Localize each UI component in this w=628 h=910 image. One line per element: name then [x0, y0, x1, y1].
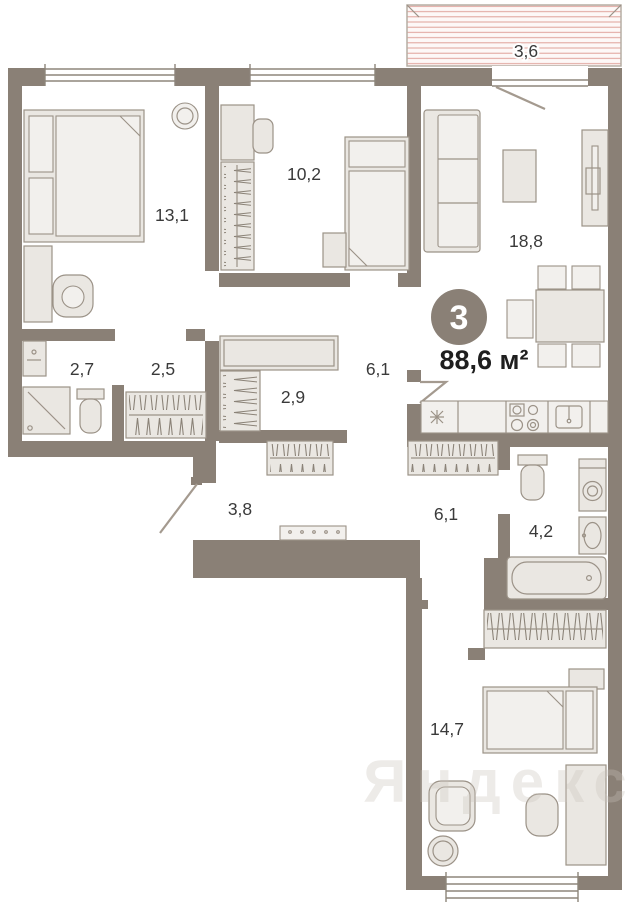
room-bath-27: 2,7: [23, 341, 104, 434]
wall-segment: [406, 578, 422, 890]
wardrobe-icon: [484, 610, 606, 648]
rooms-count: 3: [450, 299, 469, 337]
wall-segment: [420, 600, 428, 609]
nightstand-icon: [569, 669, 604, 689]
washbasin-icon: [23, 341, 46, 376]
room-area-label: 10,2: [287, 164, 321, 184]
toilet-icon: [77, 389, 104, 433]
pouf-icon: [428, 836, 458, 866]
toilet-icon: [518, 455, 547, 500]
wall-segment: [22, 329, 115, 341]
wardrobe-icon: [408, 441, 498, 475]
kitchen-door-swing: [420, 382, 446, 403]
wall-segment: [193, 540, 420, 578]
armchair-icon: [53, 275, 93, 317]
bath-sink-icon: [579, 517, 606, 554]
wardrobe-icon: [220, 371, 260, 431]
wall-segment: [112, 385, 124, 441]
wardrobe-icon: [126, 392, 206, 438]
kitchen-counter: [421, 401, 608, 433]
wall-segment: [205, 341, 219, 441]
window-bedroom-10: [250, 64, 375, 86]
room-area-label: 3,8: [228, 499, 252, 519]
nightstand-icon: [323, 233, 346, 267]
room-bath-42: 4,2: [507, 455, 606, 599]
double-bed-icon: [24, 110, 144, 242]
single-bed-icon: [483, 687, 597, 753]
single-bed-icon: [345, 137, 409, 270]
floor-plan-page: 3,6: [0, 0, 628, 910]
room-bedroom-13: 13,1: [24, 103, 198, 322]
sofa-icon: [424, 110, 480, 252]
wall-segment: [398, 273, 421, 287]
wall-segment: [407, 370, 421, 382]
room-area-label: 2,5: [151, 359, 175, 379]
wall-segment: [219, 273, 350, 287]
window-bedroom-14: [446, 872, 578, 902]
chair-icon: [253, 119, 273, 153]
window-bedroom-13: [45, 64, 175, 86]
ceiling-lamp-icon: [172, 103, 198, 129]
wall-segment: [8, 441, 216, 457]
balcony: 3,6: [407, 5, 621, 66]
wall-segment: [8, 68, 22, 457]
coffee-table-icon: [503, 150, 536, 202]
room-area-label-hall-upper: 6,1: [366, 359, 390, 379]
floor-plan: 3,6: [0, 0, 628, 910]
wall-segment: [205, 86, 219, 271]
room-hall-38: 3,8: [228, 441, 346, 540]
bench-icon: [280, 526, 346, 540]
room-hall-61-lower: 6,1: [408, 441, 498, 524]
shelf-icon: [220, 336, 338, 370]
entrance-door-leaf: [160, 484, 197, 533]
fridge-icon: [430, 410, 444, 424]
room-area-label: 18,8: [509, 231, 543, 251]
wardrobe-icon: [221, 162, 254, 270]
room-bedroom-10: 10,2: [221, 105, 409, 270]
dresser-icon: [24, 246, 52, 322]
wall-segment: [484, 598, 622, 610]
balcony-door-opening: [492, 66, 588, 109]
wall-segment: [498, 514, 510, 558]
wall-segment: [186, 329, 205, 341]
room-area-label: 13,1: [155, 205, 189, 225]
room-area-label: 2,7: [70, 359, 94, 379]
balcony-door-swing: [496, 87, 545, 109]
tv-unit-icon: [582, 130, 608, 226]
room-bedroom-14: 14,7: [428, 610, 606, 866]
wall-segment: [498, 443, 510, 470]
room-area-label: 6,1: [434, 504, 458, 524]
room-living: 18,8: [421, 110, 608, 433]
room-area-label: 14,7: [430, 719, 464, 739]
room-area-label: 4,2: [529, 521, 553, 541]
wall-segment: [468, 648, 485, 660]
wardrobe-icon: [267, 441, 333, 475]
washing-machine-icon: [579, 459, 606, 511]
shower-icon: [23, 387, 70, 434]
bathtub-icon: [507, 557, 606, 599]
room-area-label: 2,9: [281, 387, 305, 407]
balcony-area-label: 3,6: [514, 41, 538, 61]
total-area: 88,6 м²: [439, 345, 528, 375]
desk-icon: [221, 105, 254, 160]
room-wardrobe-29: 2,9: [220, 336, 338, 431]
watermark: Яндекс: [363, 748, 628, 815]
room-hall-25: 2,5: [126, 359, 206, 438]
